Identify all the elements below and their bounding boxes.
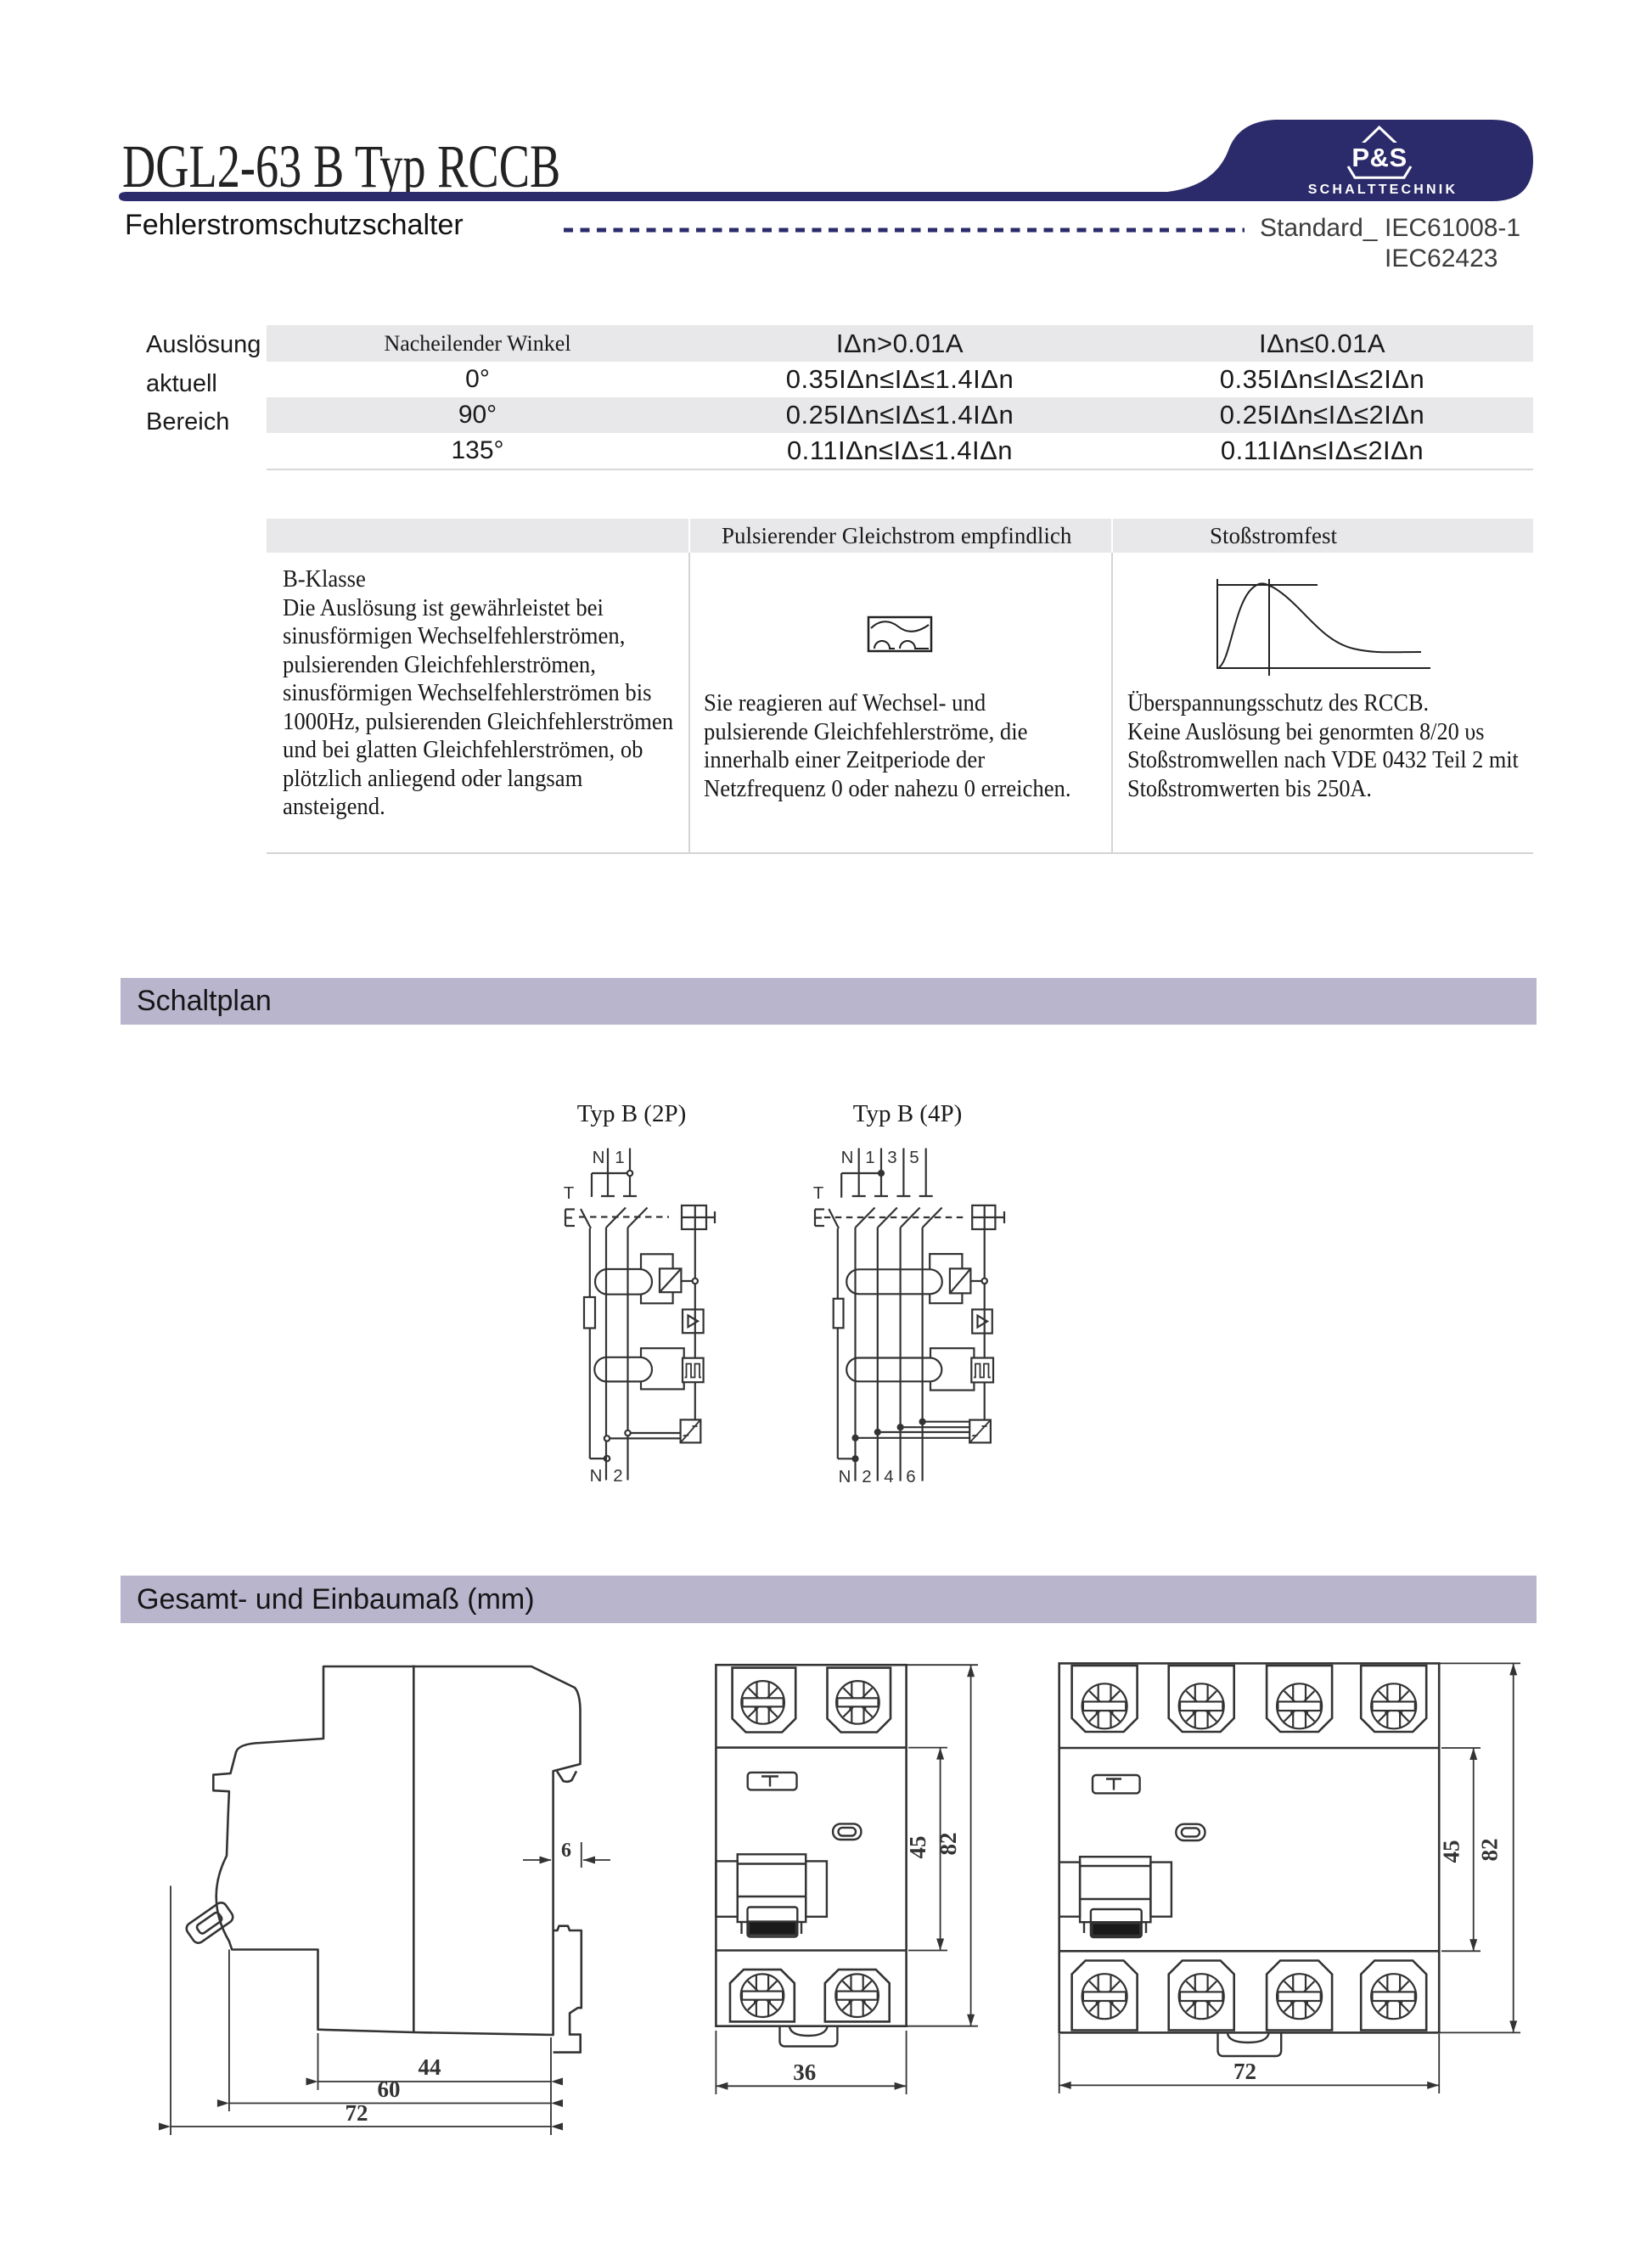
svg-text:45: 45 xyxy=(1439,1840,1464,1863)
svg-text:1: 1 xyxy=(615,1148,624,1167)
svg-text:82: 82 xyxy=(936,1833,961,1856)
svg-text:44: 44 xyxy=(419,2054,441,2080)
svg-text:T: T xyxy=(813,1183,824,1203)
svg-text:1: 1 xyxy=(865,1148,874,1167)
svg-text:72: 72 xyxy=(346,2100,368,2126)
svg-text:N: N xyxy=(841,1148,854,1167)
svg-text:45: 45 xyxy=(905,1836,930,1859)
svg-text:3: 3 xyxy=(887,1148,896,1167)
svg-text:6: 6 xyxy=(906,1467,915,1486)
svg-text:N: N xyxy=(839,1467,851,1486)
svg-text:2: 2 xyxy=(862,1467,871,1486)
svg-text:5: 5 xyxy=(909,1148,919,1167)
svg-text:T: T xyxy=(564,1183,575,1203)
svg-text:SCHALTTECHNIK: SCHALTTECHNIK xyxy=(1308,183,1458,197)
svg-text:P&S: P&S xyxy=(1351,143,1407,172)
svg-text:60: 60 xyxy=(378,2076,401,2102)
svg-text:4: 4 xyxy=(884,1467,893,1486)
svg-text:82: 82 xyxy=(1477,1839,1503,1862)
svg-text:2: 2 xyxy=(613,1466,622,1486)
svg-text:72: 72 xyxy=(1233,2059,1256,2084)
svg-text:6: 6 xyxy=(561,1840,571,1862)
svg-text:36: 36 xyxy=(793,2059,816,2085)
svg-text:N: N xyxy=(590,1466,603,1486)
svg-text:N: N xyxy=(593,1148,605,1167)
